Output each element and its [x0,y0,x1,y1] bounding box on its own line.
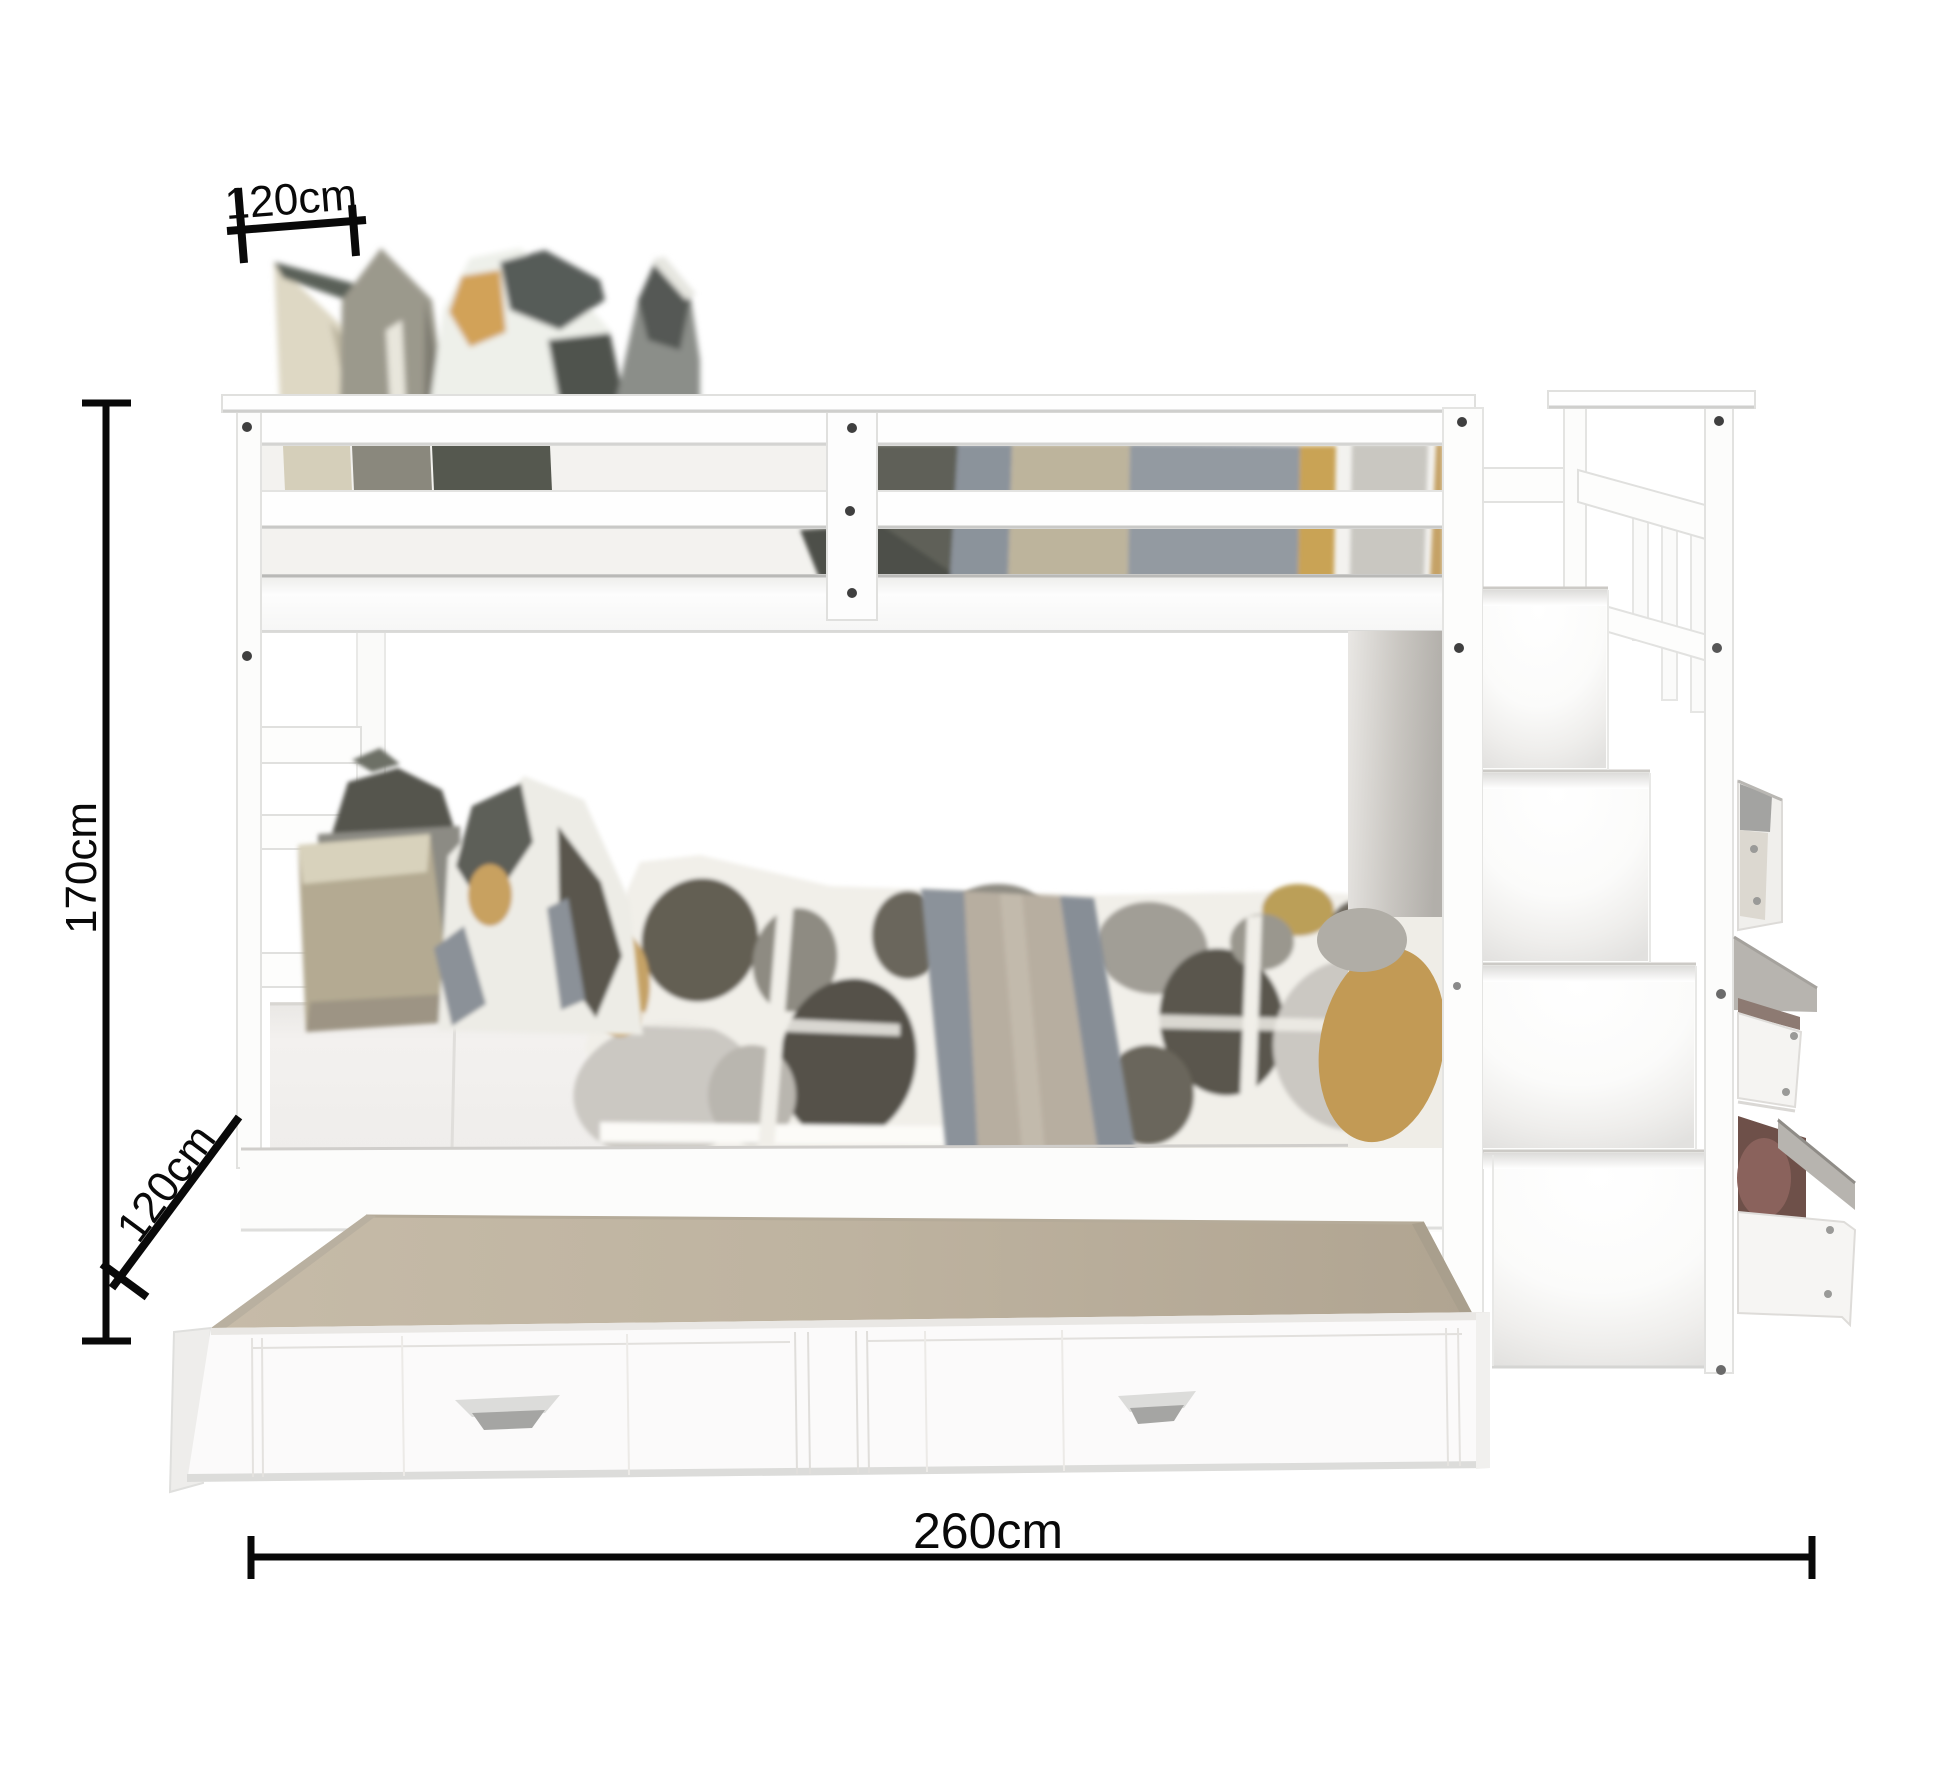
svg-text:170cm: 170cm [57,802,106,934]
svg-text:260cm: 260cm [913,1503,1063,1559]
svg-text:120cm: 120cm [223,170,359,229]
